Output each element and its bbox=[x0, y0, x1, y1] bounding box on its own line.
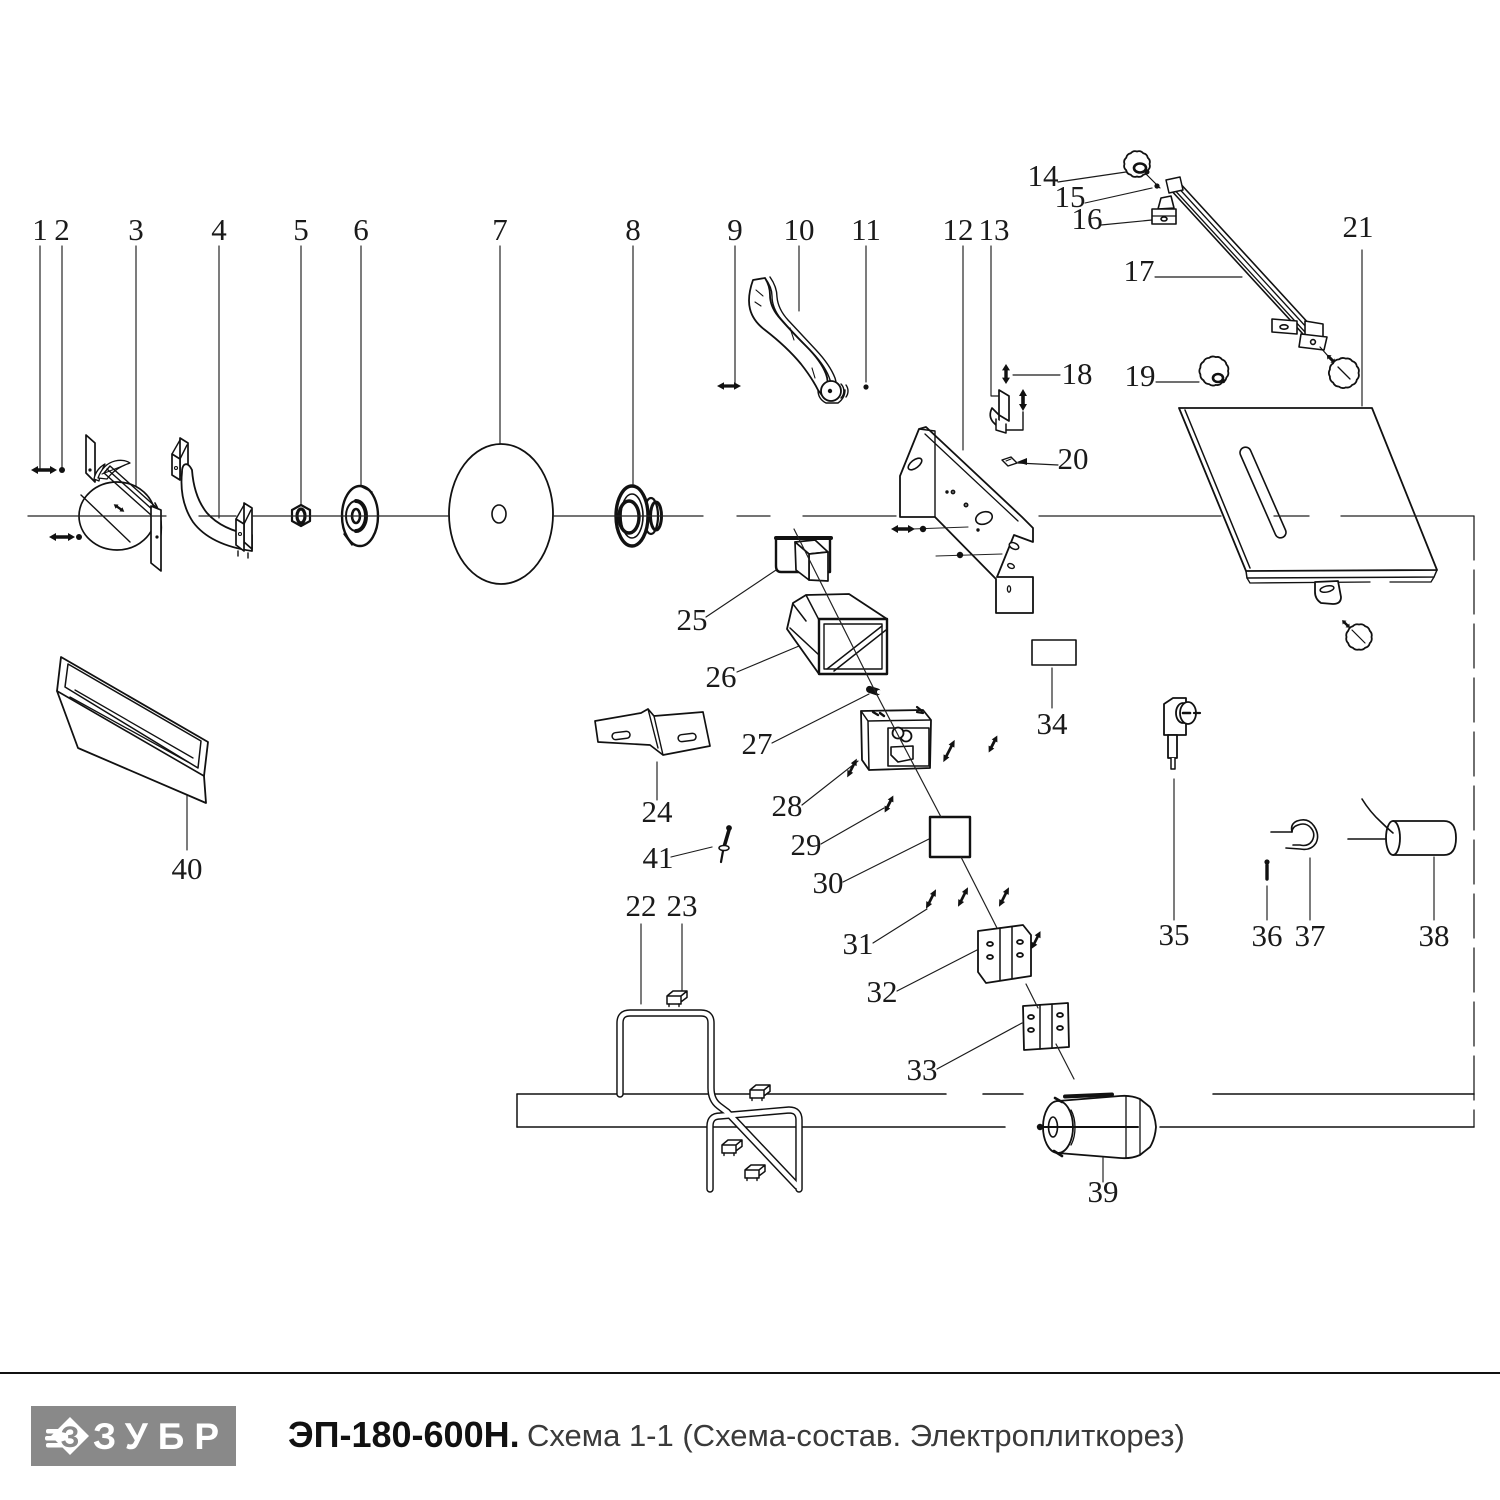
svg-text:З: З bbox=[61, 1421, 80, 1454]
svg-text:26: 26 bbox=[706, 659, 737, 694]
svg-text:30: 30 bbox=[813, 865, 844, 900]
svg-text:39: 39 bbox=[1088, 1174, 1119, 1209]
svg-text:11: 11 bbox=[851, 212, 881, 247]
svg-text:37: 37 bbox=[1295, 918, 1326, 953]
svg-text:34: 34 bbox=[1037, 706, 1069, 741]
svg-text:4: 4 bbox=[211, 212, 227, 247]
svg-text:31: 31 bbox=[843, 926, 874, 961]
svg-text:25: 25 bbox=[677, 602, 708, 637]
svg-text:ЭП-180-600Н.: ЭП-180-600Н. bbox=[288, 1414, 520, 1455]
svg-text:19: 19 bbox=[1125, 358, 1156, 393]
svg-text:6: 6 bbox=[353, 212, 369, 247]
svg-text:16: 16 bbox=[1072, 201, 1103, 236]
svg-text:18: 18 bbox=[1062, 356, 1093, 391]
svg-text:23: 23 bbox=[667, 888, 698, 923]
svg-text:17: 17 bbox=[1124, 253, 1155, 288]
svg-text:20: 20 bbox=[1058, 441, 1089, 476]
svg-text:28: 28 bbox=[772, 788, 803, 823]
svg-text:36: 36 bbox=[1252, 918, 1283, 953]
svg-text:12: 12 bbox=[943, 212, 974, 247]
svg-text:35: 35 bbox=[1159, 917, 1190, 952]
svg-text:10: 10 bbox=[784, 212, 815, 247]
svg-text:33: 33 bbox=[907, 1052, 938, 1087]
svg-text:8: 8 bbox=[625, 212, 641, 247]
svg-text:29: 29 bbox=[791, 827, 822, 862]
svg-text:32: 32 bbox=[867, 974, 898, 1009]
svg-text:ЗУБР: ЗУБР bbox=[93, 1416, 229, 1457]
svg-text:38: 38 bbox=[1419, 918, 1450, 953]
svg-text:7: 7 bbox=[492, 212, 508, 247]
svg-text:3: 3 bbox=[128, 212, 144, 247]
svg-text:22: 22 bbox=[626, 888, 657, 923]
svg-text:24: 24 bbox=[642, 794, 674, 829]
svg-text:41: 41 bbox=[643, 840, 674, 875]
svg-text:40: 40 bbox=[172, 851, 203, 886]
svg-text:2: 2 bbox=[54, 212, 70, 247]
svg-text:27: 27 bbox=[742, 726, 773, 761]
svg-text:1: 1 bbox=[32, 212, 48, 247]
svg-text:5: 5 bbox=[293, 212, 309, 247]
svg-text:21: 21 bbox=[1343, 209, 1374, 244]
svg-text:13: 13 bbox=[979, 212, 1010, 247]
svg-text:9: 9 bbox=[727, 212, 743, 247]
svg-text:Схема 1-1 (Схема-состав. Элект: Схема 1-1 (Схема-состав. Электроплиткоре… bbox=[527, 1418, 1185, 1453]
